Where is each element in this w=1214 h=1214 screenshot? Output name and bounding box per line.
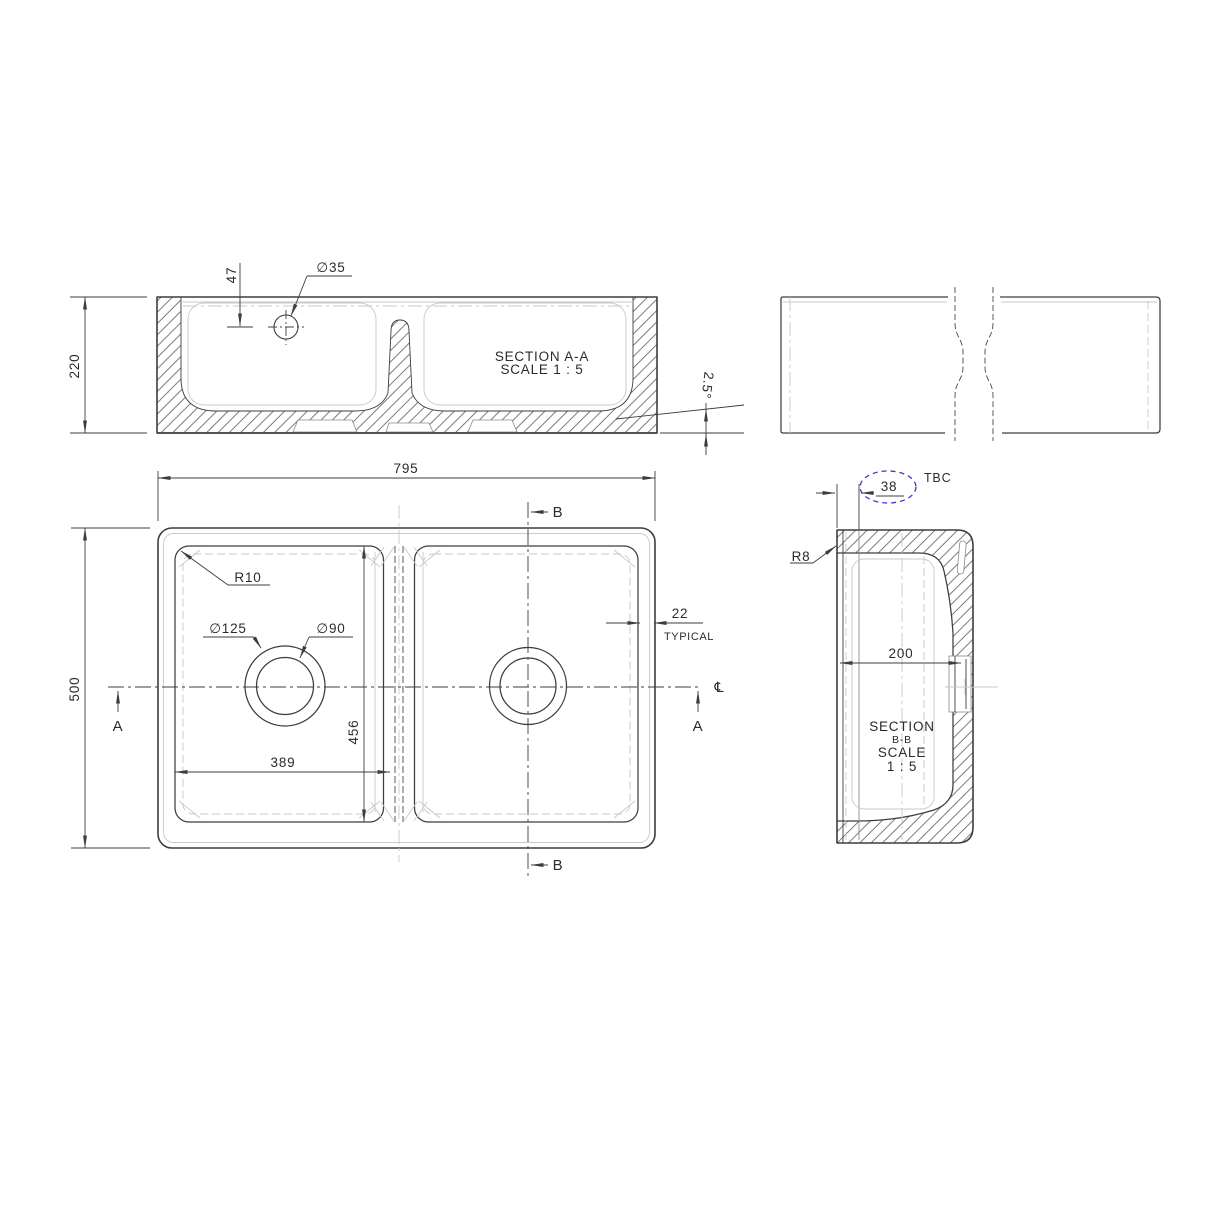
section-bb-view bbox=[837, 530, 998, 843]
foot-recess bbox=[468, 420, 517, 432]
dim-corner-radius: R10 bbox=[234, 570, 261, 585]
drawing-canvas: 220 47 ∅35 SECTION A-A SCALE 1 : 5 2.5° … bbox=[0, 0, 1214, 1214]
section-marker-b-bottom: B bbox=[553, 857, 564, 874]
weir-notch bbox=[949, 656, 971, 712]
front-elevation-view bbox=[781, 287, 1160, 441]
dim-tap-dia: ∅35 bbox=[316, 260, 345, 275]
dim-wall-thickness: 22 bbox=[672, 606, 689, 621]
dim-rim-note: TBC bbox=[924, 471, 951, 485]
section-aa-scale: SCALE 1 : 5 bbox=[500, 362, 583, 377]
drawing-text: 220 47 ∅35 SECTION A-A SCALE 1 : 5 2.5° … bbox=[67, 260, 951, 874]
dim-rim-width: 38 bbox=[881, 479, 898, 494]
dim-draft-angle: 2.5° bbox=[698, 371, 716, 400]
dim-tap-offset: 47 bbox=[224, 267, 239, 284]
dim-waste-inner: ∅90 bbox=[316, 621, 345, 636]
break-line bbox=[985, 287, 993, 441]
centerline-symbol: ℄ bbox=[714, 680, 724, 696]
foot-recess bbox=[386, 423, 433, 432]
dim-half-width: 200 bbox=[889, 646, 914, 661]
dim-height: 220 bbox=[67, 354, 82, 379]
bowl-left bbox=[175, 546, 384, 822]
dim-bowl-width: 456 bbox=[346, 720, 361, 745]
dim-waste-outer: ∅125 bbox=[209, 621, 246, 636]
technical-drawing: 220 47 ∅35 SECTION A-A SCALE 1 : 5 2.5° … bbox=[0, 0, 1214, 1214]
dim-width: 500 bbox=[67, 677, 82, 702]
dim-wall-note: TYPICAL bbox=[664, 631, 714, 643]
foot-recess bbox=[293, 420, 357, 432]
dim-length: 795 bbox=[394, 461, 419, 476]
section-marker-a-left: A bbox=[113, 718, 124, 735]
break-line bbox=[955, 287, 963, 441]
section-bb-title: SECTION bbox=[869, 719, 935, 734]
dim-bowl-length: 389 bbox=[271, 755, 296, 770]
dim-section-radius: R8 bbox=[792, 549, 811, 564]
section-bb-scale-word: SCALE bbox=[878, 745, 926, 760]
plan-view bbox=[108, 502, 700, 876]
section-marker-a-right: A bbox=[693, 718, 704, 735]
bowl-right bbox=[415, 546, 639, 822]
section-marker-b-top: B bbox=[553, 504, 564, 521]
section-bb-scale-ratio: 1 : 5 bbox=[887, 759, 917, 774]
